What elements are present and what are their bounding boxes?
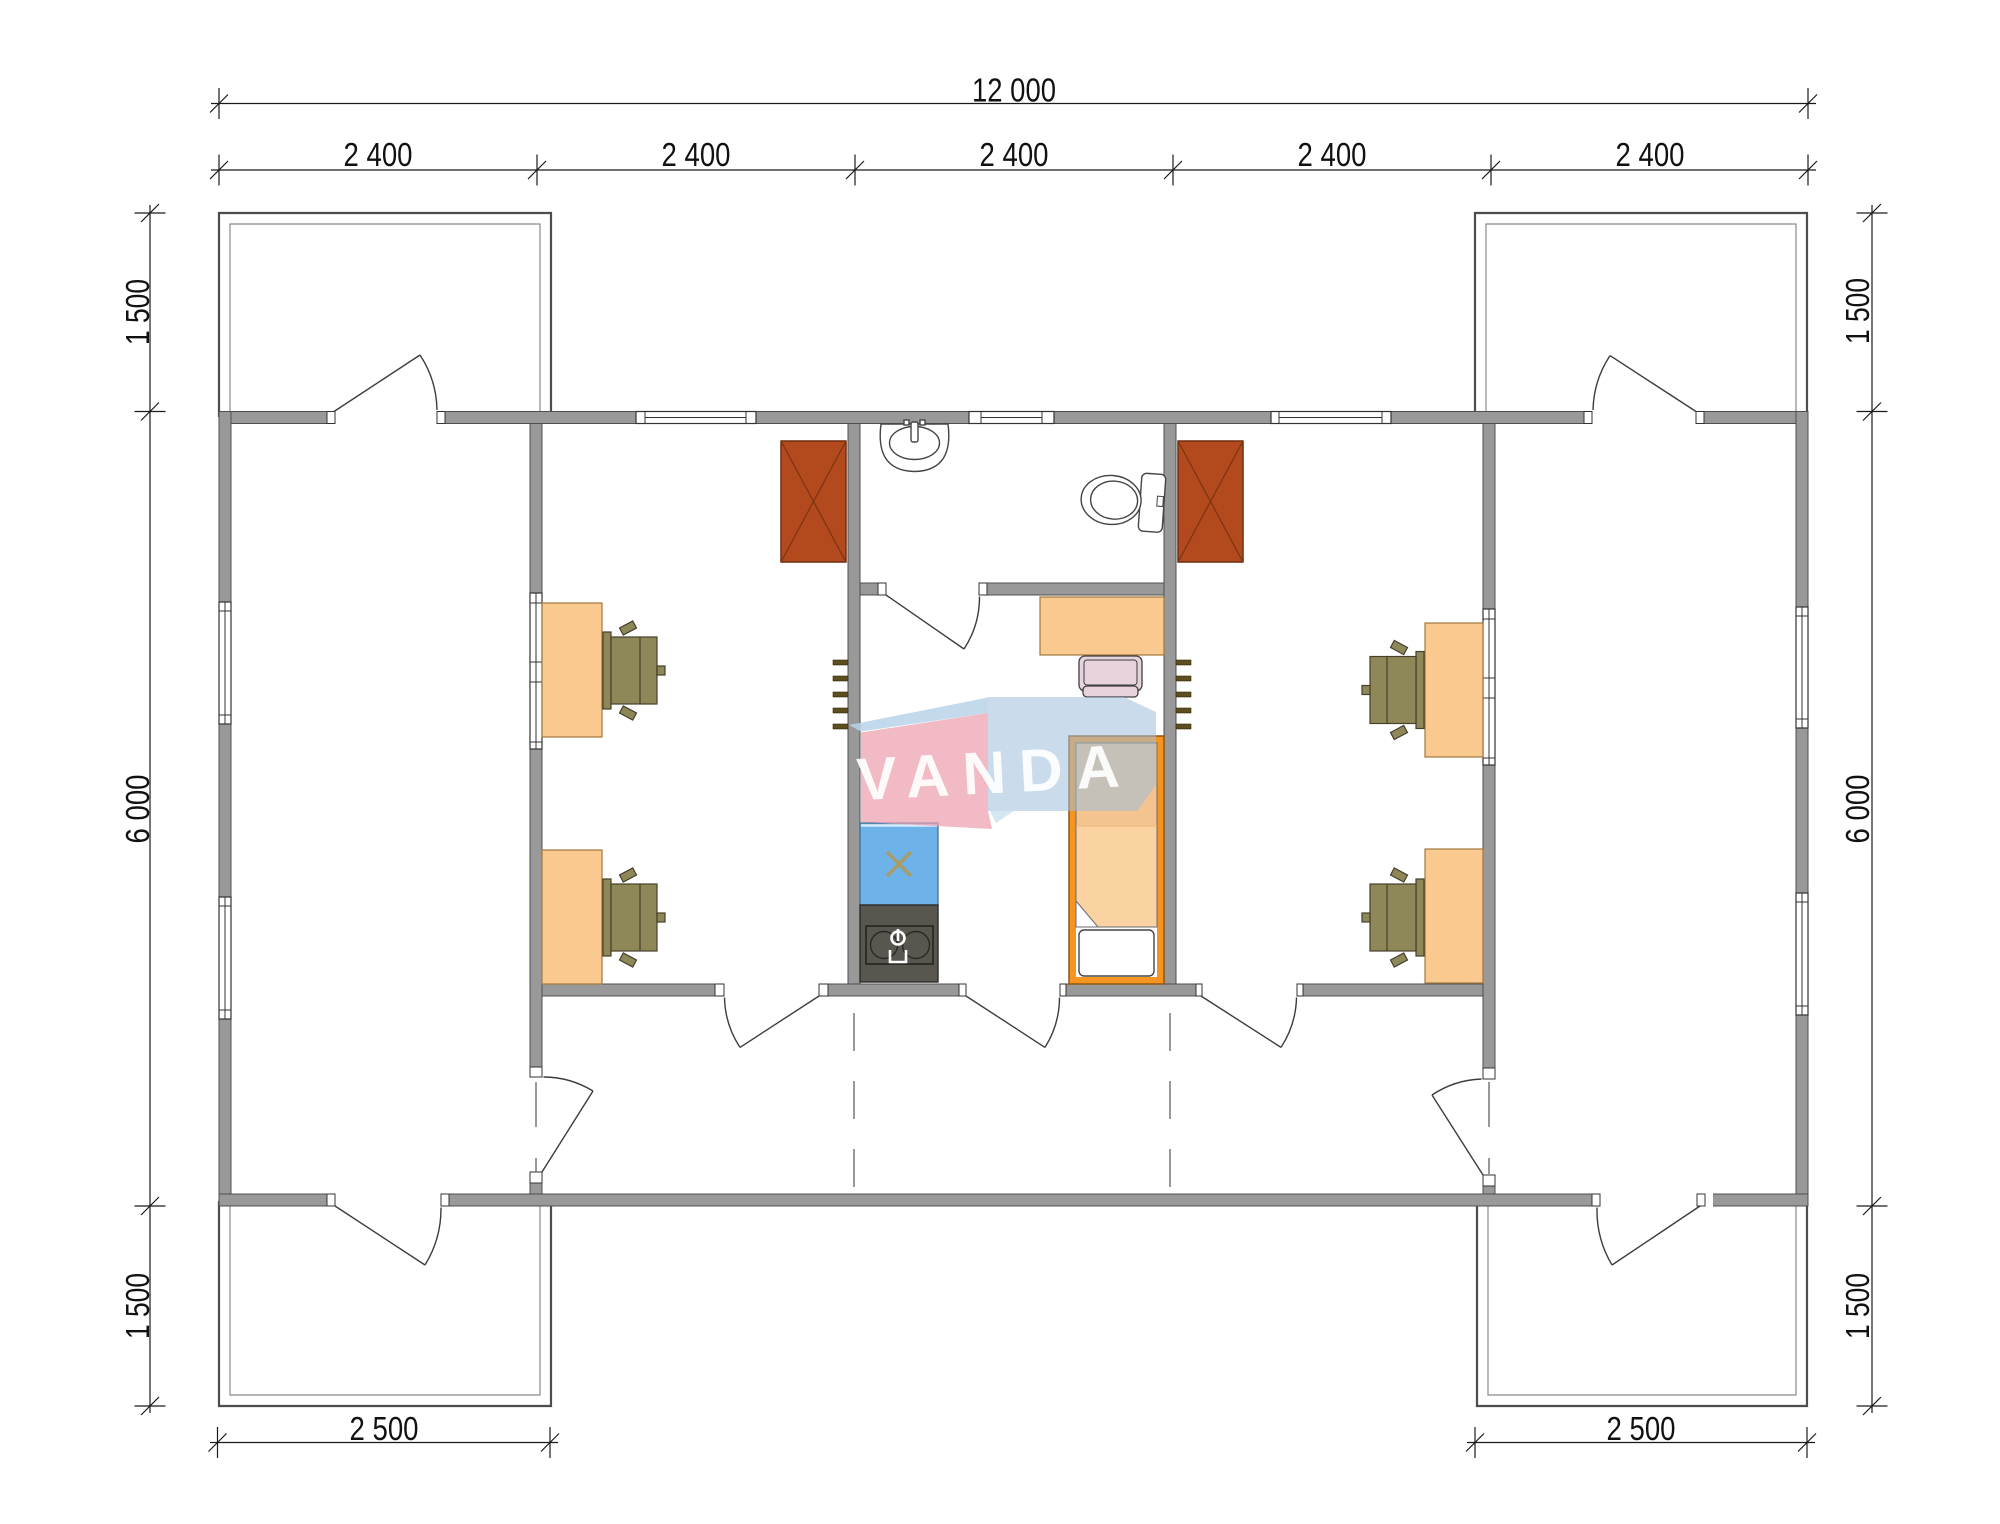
svg-text:1 500: 1 500 <box>119 279 156 345</box>
svg-text:2 500: 2 500 <box>1607 1410 1676 1447</box>
svg-text:2 400: 2 400 <box>344 136 413 173</box>
svg-text:1 500: 1 500 <box>1839 278 1876 344</box>
svg-text:1 500: 1 500 <box>1839 1273 1876 1339</box>
svg-text:2 400: 2 400 <box>1298 136 1367 173</box>
svg-text:1 500: 1 500 <box>119 1273 156 1339</box>
svg-text:2 500: 2 500 <box>350 1410 419 1447</box>
svg-text:2 400: 2 400 <box>980 136 1049 173</box>
svg-text:12 000: 12 000 <box>972 72 1056 109</box>
svg-text:2 400: 2 400 <box>662 136 731 173</box>
svg-text:6 000: 6 000 <box>1839 775 1876 844</box>
svg-text:6 000: 6 000 <box>119 775 156 844</box>
svg-text:2 400: 2 400 <box>1616 136 1685 173</box>
